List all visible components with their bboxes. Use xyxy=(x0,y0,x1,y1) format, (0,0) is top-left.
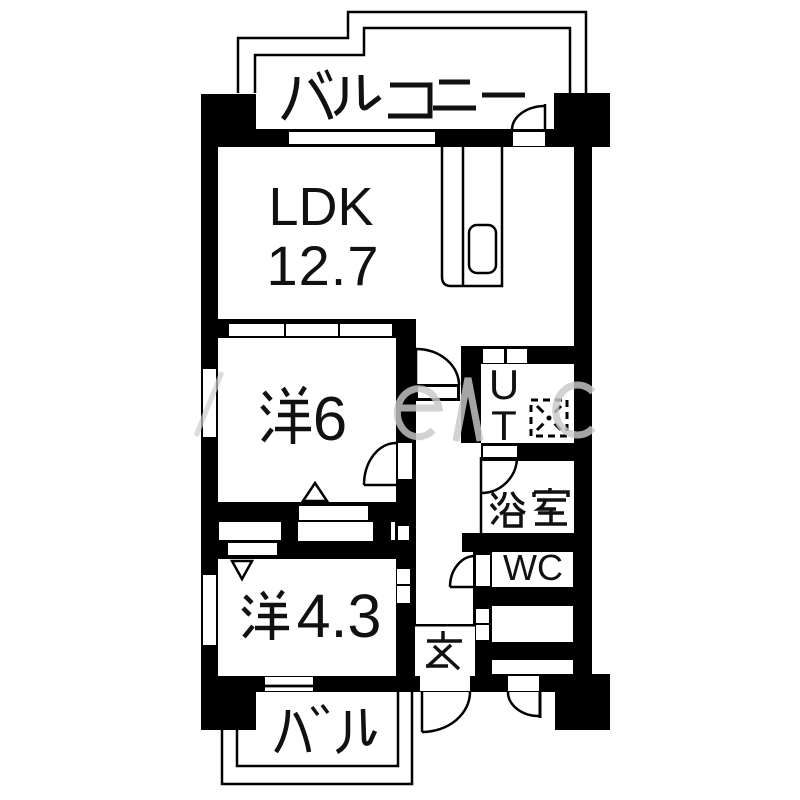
svg-text:4.3: 4.3 xyxy=(297,582,382,650)
svg-text:WC: WC xyxy=(503,547,563,588)
svg-text:6: 6 xyxy=(313,385,347,454)
svg-text:LDK: LDK xyxy=(268,177,373,237)
svg-text:12.7: 12.7 xyxy=(267,234,380,297)
svg-text:U: U xyxy=(489,361,519,408)
svg-text:T: T xyxy=(491,402,517,449)
